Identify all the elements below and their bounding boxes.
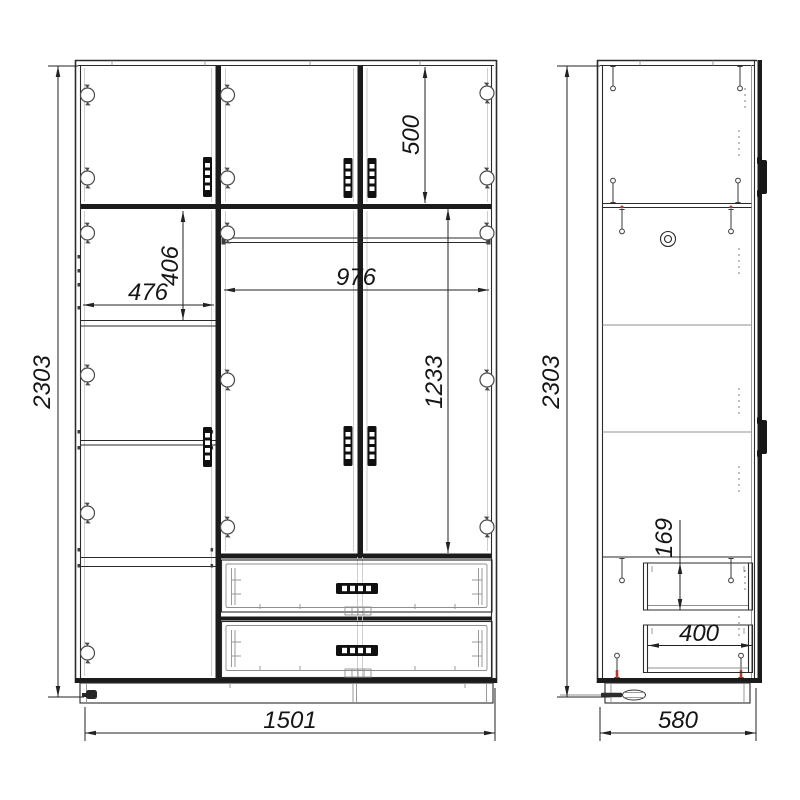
dim-left-section-width: 476: [83, 279, 214, 307]
dim-label-left-top-compartment-height: 406: [157, 245, 184, 286]
adjustable-foot-icon: [82, 690, 97, 699]
drawer-handle-icon: [336, 583, 378, 594]
dim-label-center-section-width: 976: [336, 264, 377, 291]
hinge-icon: [81, 503, 95, 524]
dim-label-front-height: 2303: [29, 355, 56, 410]
door-handle-icon: [344, 158, 353, 198]
hinge-icon: [221, 168, 235, 189]
dim-label-drawer-depth: 400: [679, 620, 720, 647]
hinge-icon: [81, 365, 95, 386]
dim-label-drawer-front-height: 169: [651, 518, 678, 558]
screw-icon: [737, 66, 742, 91]
screw-icon: [735, 178, 740, 203]
screw-icon: [728, 209, 733, 234]
hinge-icon: [81, 168, 95, 189]
side-drawer-boxes: [643, 563, 753, 673]
dim-top-doors-height: 500: [398, 67, 427, 203]
screw-icon: [619, 558, 624, 583]
hinge-icon: [221, 517, 235, 538]
dim-center-doors-height: 1233: [421, 209, 450, 553]
drawer-handle-icon: [336, 645, 378, 656]
front-door-handles: [203, 157, 377, 467]
hinge-icon: [221, 85, 235, 106]
technical-drawing-page: 2303 1501 500 476 406 976 1233: [0, 0, 800, 800]
door-handle-icon: [203, 157, 212, 197]
screwdriver-icon: [560, 690, 646, 700]
dim-drawer-front-height: 169: [651, 518, 682, 610]
dim-side-overall-height: 2303: [538, 66, 610, 697]
dim-label-top-doors-height: 500: [398, 114, 425, 155]
screw-icon: [619, 209, 624, 234]
dim-label-center-doors-height: 1233: [421, 355, 448, 409]
door-handle-icon: [344, 426, 353, 466]
screw-icon: [728, 558, 733, 583]
front-plinth: [80, 683, 493, 703]
side-shelves: [603, 204, 752, 558]
door-handle-icon: [368, 426, 377, 466]
drawer-2: [222, 622, 493, 678]
screw-icon: [610, 178, 615, 203]
cam-lock-icon: [661, 232, 676, 247]
door-handle-icon: [203, 427, 212, 467]
hinge-icon: [221, 370, 235, 391]
door-handle-icon: [368, 158, 377, 198]
dim-drawer-depth: 400: [648, 620, 752, 648]
dim-label-side-depth: 580: [658, 707, 699, 734]
dim-center-section-width: 976: [224, 264, 489, 292]
dim-front-overall-width: 1501: [85, 688, 495, 741]
drawer-1: [222, 560, 493, 615]
hinge-icon: [81, 223, 95, 244]
dim-label-front-width: 1501: [263, 707, 316, 734]
screw-icon: [610, 66, 615, 91]
hinge-icon: [81, 85, 95, 106]
side-view: [560, 60, 767, 703]
wardrobe-technical-drawing: 2303 1501 500 476 406 976 1233: [0, 0, 800, 800]
hanging-rail: [222, 236, 491, 245]
hinge-icon: [81, 643, 95, 664]
side-screws: [610, 66, 743, 678]
dim-label-side-height: 2303: [538, 355, 565, 410]
